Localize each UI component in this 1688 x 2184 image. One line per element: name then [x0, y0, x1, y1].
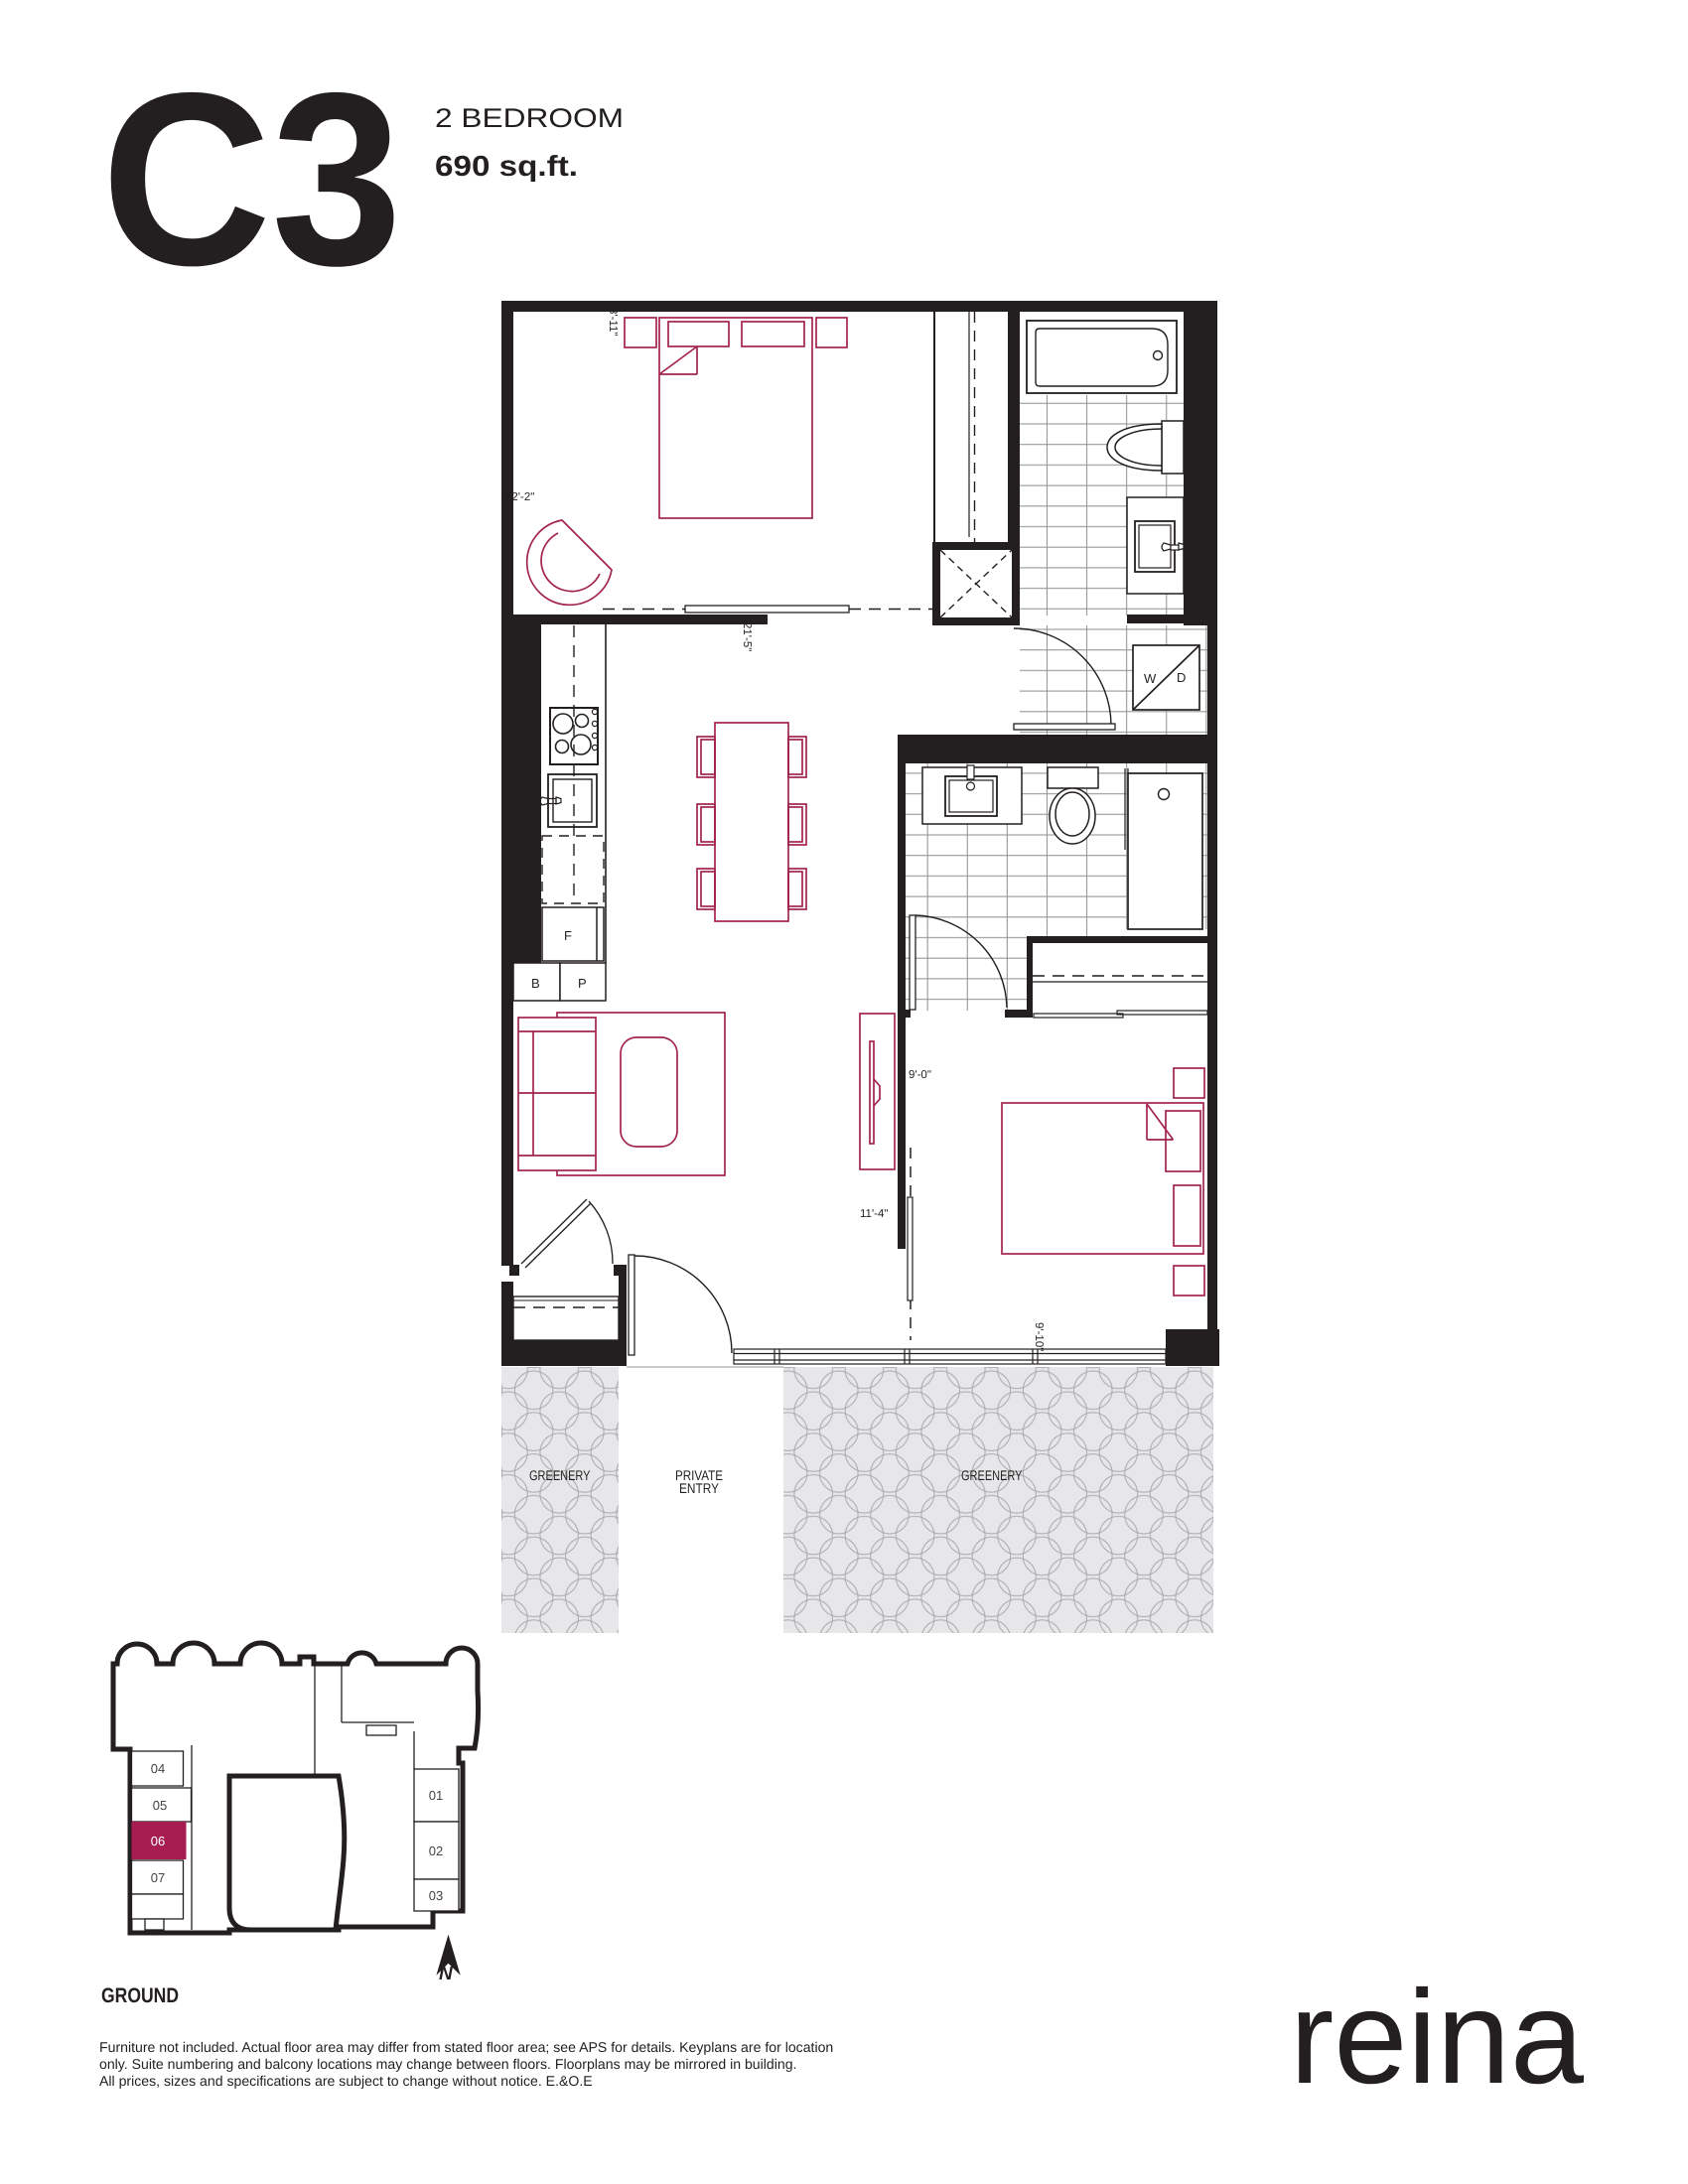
svg-text:GREENERY: GREENERY: [961, 1467, 1023, 1483]
svg-text:GREENERY: GREENERY: [529, 1467, 591, 1483]
svg-text:ENTRY: ENTRY: [679, 1480, 720, 1496]
svg-text:690 sq.ft.: 690 sq.ft.: [435, 151, 578, 183]
svg-text:W: W: [1144, 671, 1157, 686]
svg-text:D: D: [1177, 670, 1186, 685]
svg-text:B: B: [531, 976, 540, 991]
svg-text:F: F: [564, 928, 572, 943]
svg-text:All prices, sizes and specific: All prices, sizes and specifications are…: [99, 2073, 593, 2089]
svg-text:only. Suite numbering and balc: only. Suite numbering and balcony locati…: [99, 2056, 796, 2072]
svg-text:Furniture not included. Actual: Furniture not included. Actual floor are…: [99, 2039, 833, 2055]
svg-text:05: 05: [153, 1798, 167, 1813]
svg-text:01: 01: [429, 1788, 443, 1803]
svg-text:06: 06: [151, 1834, 165, 1848]
svg-text:21'-5": 21'-5": [741, 622, 753, 651]
svg-text:9'-0": 9'-0": [909, 1069, 931, 1081]
svg-text:04: 04: [151, 1761, 165, 1776]
svg-text:11'-4": 11'-4": [860, 1208, 888, 1220]
svg-text:9'-10": 9'-10": [1033, 1322, 1045, 1351]
svg-text:07: 07: [151, 1870, 165, 1885]
svg-text:N: N: [439, 1964, 454, 1984]
svg-text:GROUND: GROUND: [101, 1984, 179, 2007]
svg-text:reina: reina: [1290, 1964, 1584, 2112]
svg-text:02: 02: [429, 1843, 443, 1858]
svg-text:8'-11": 8'-11": [607, 308, 619, 336]
svg-text:03: 03: [429, 1888, 443, 1903]
svg-text:P: P: [578, 976, 587, 991]
svg-text:12'-2": 12'-2": [505, 491, 534, 503]
svg-text:2 BEDROOM: 2 BEDROOM: [435, 103, 624, 133]
svg-text:C3: C3: [101, 41, 402, 317]
